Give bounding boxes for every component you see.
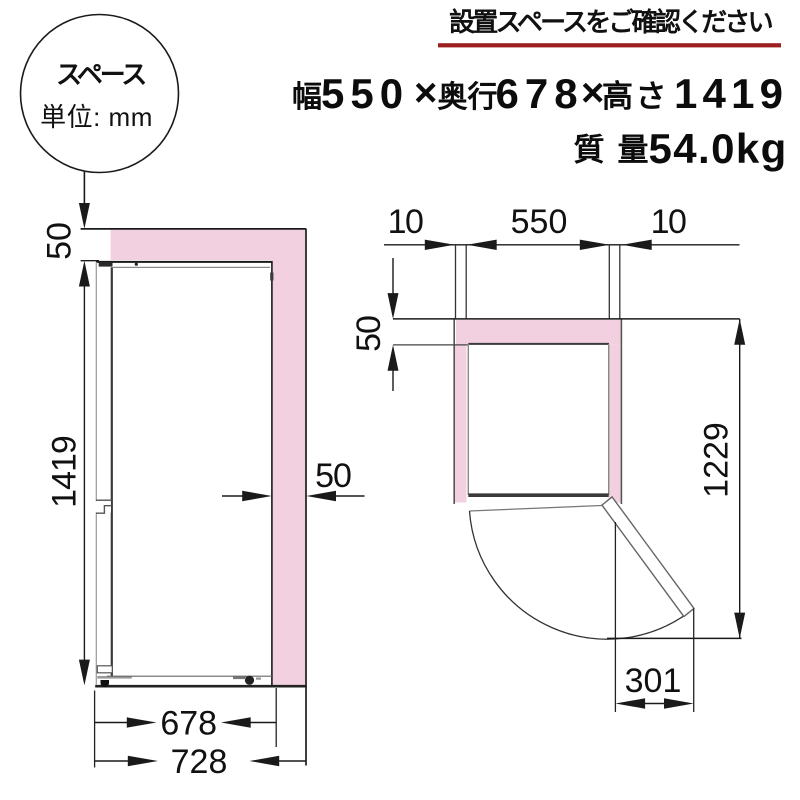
svg-text:550: 550: [321, 70, 409, 117]
svg-text:54.0kg: 54.0kg: [649, 125, 788, 172]
svg-text:678: 678: [160, 705, 217, 743]
svg-text:単位: mm: 単位: mm: [40, 102, 153, 132]
svg-text:50: 50: [41, 222, 79, 260]
svg-text:幅: 幅: [292, 81, 322, 114]
svg-text:1229: 1229: [698, 422, 736, 498]
svg-text:設置スペースをご確認ください: 設置スペースをご確認ください: [449, 7, 772, 37]
svg-text:10: 10: [651, 203, 686, 241]
svg-text:728: 728: [171, 743, 228, 781]
svg-text:スペース: スペース: [56, 60, 145, 90]
svg-text:10: 10: [388, 203, 423, 241]
svg-text:1419: 1419: [46, 436, 84, 508]
svg-text:50: 50: [350, 316, 388, 352]
svg-text:×: ×: [581, 71, 604, 115]
svg-text:301: 301: [625, 662, 682, 700]
svg-text:×: ×: [414, 71, 437, 115]
svg-text:奥行: 奥行: [438, 80, 498, 114]
svg-text:50: 50: [315, 457, 351, 495]
svg-text:678: 678: [496, 70, 584, 117]
svg-text:1419: 1419: [674, 70, 788, 117]
svg-text:高さ: 高さ: [602, 79, 669, 114]
svg-text:550: 550: [511, 203, 568, 241]
